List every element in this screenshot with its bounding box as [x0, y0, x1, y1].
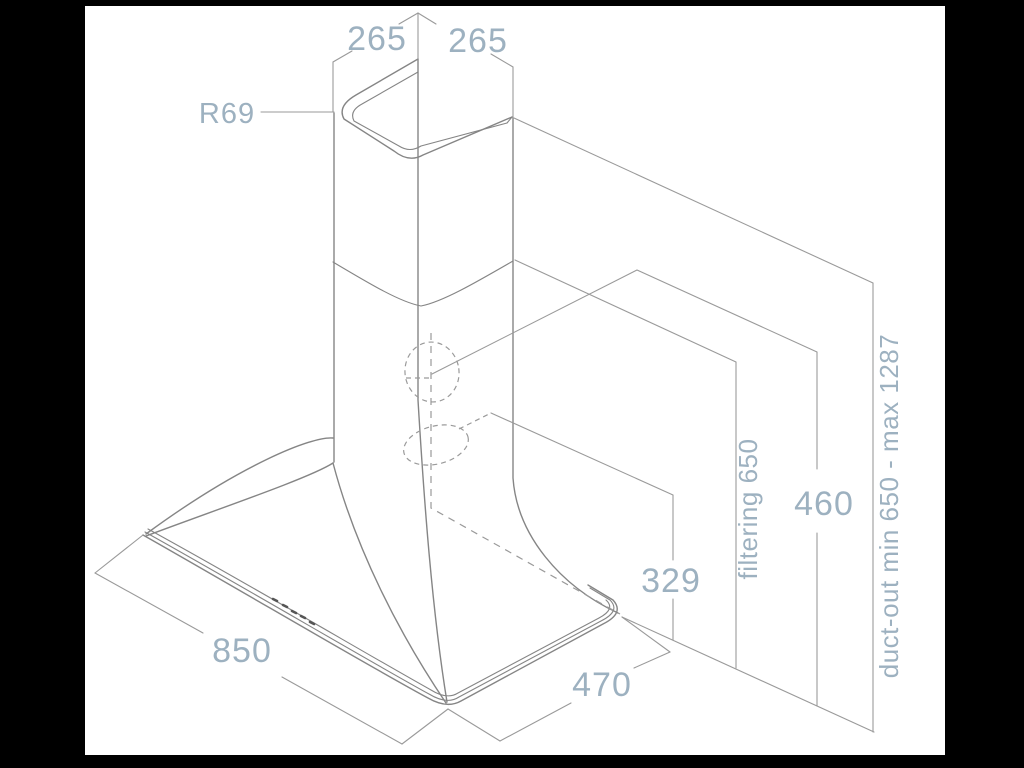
- dim-label-470: 470: [572, 666, 632, 704]
- dim-label-265-left: 265: [347, 20, 407, 58]
- dim-label-329: 329: [641, 562, 701, 600]
- dim-label-filtering-650: filtering 650: [733, 439, 763, 580]
- control-button: [292, 611, 296, 613]
- dim-label-460: 460: [794, 485, 854, 523]
- dim-label-duct-out-range: duct-out min 650 - max 1287: [874, 334, 904, 678]
- control-button: [273, 599, 277, 601]
- control-button: [283, 605, 287, 607]
- dim-label-r69: R69: [199, 98, 255, 130]
- control-button: [310, 622, 314, 624]
- control-button: [301, 616, 305, 618]
- dim-label-850: 850: [212, 632, 272, 670]
- diagram-svg: 265 265 R69 850 470 329 460 filtering 65…: [0, 0, 1024, 768]
- hood-dimension-diagram: 265 265 R69 850 470 329 460 filtering 65…: [0, 0, 1024, 768]
- dim-label-265-right: 265: [448, 22, 508, 60]
